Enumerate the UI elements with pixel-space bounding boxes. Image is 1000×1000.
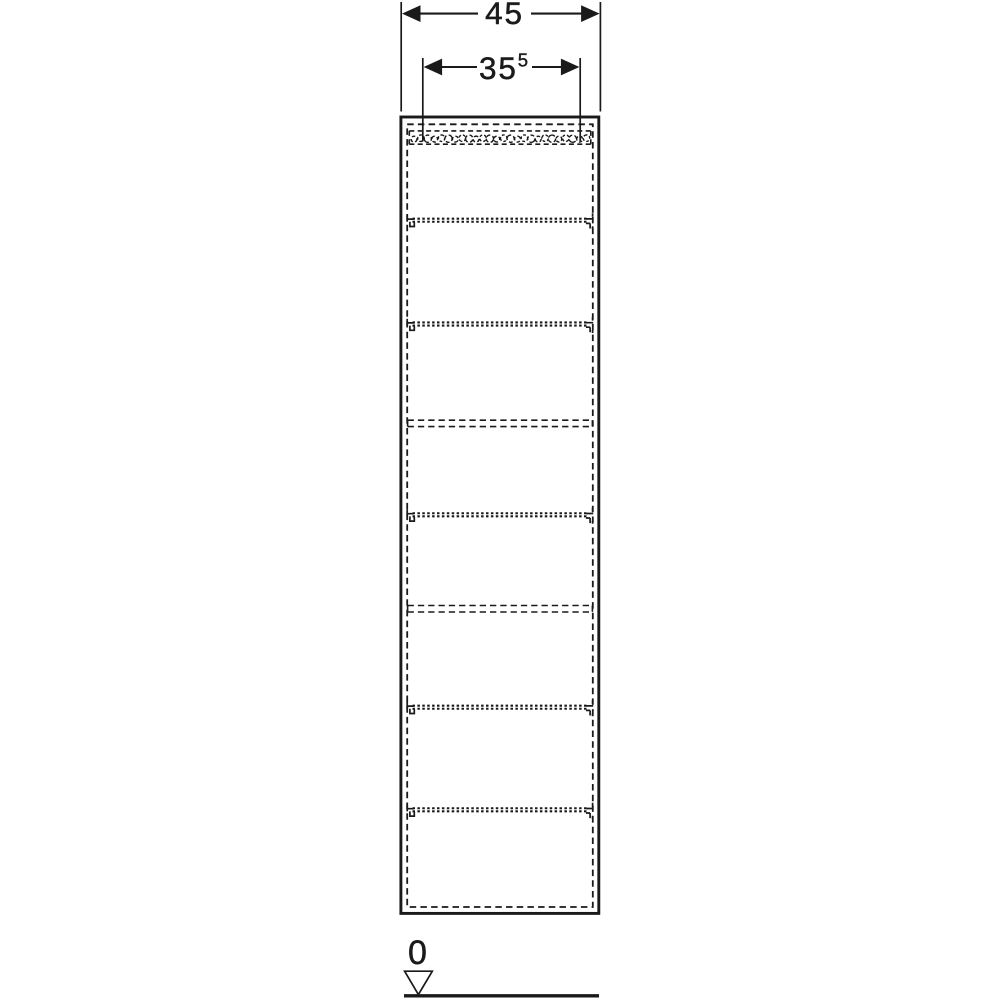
svg-text:45: 45: [485, 0, 524, 31]
svg-text:0: 0: [408, 934, 427, 972]
svg-text:5: 5: [518, 50, 528, 71]
svg-text:35: 35: [479, 50, 518, 86]
